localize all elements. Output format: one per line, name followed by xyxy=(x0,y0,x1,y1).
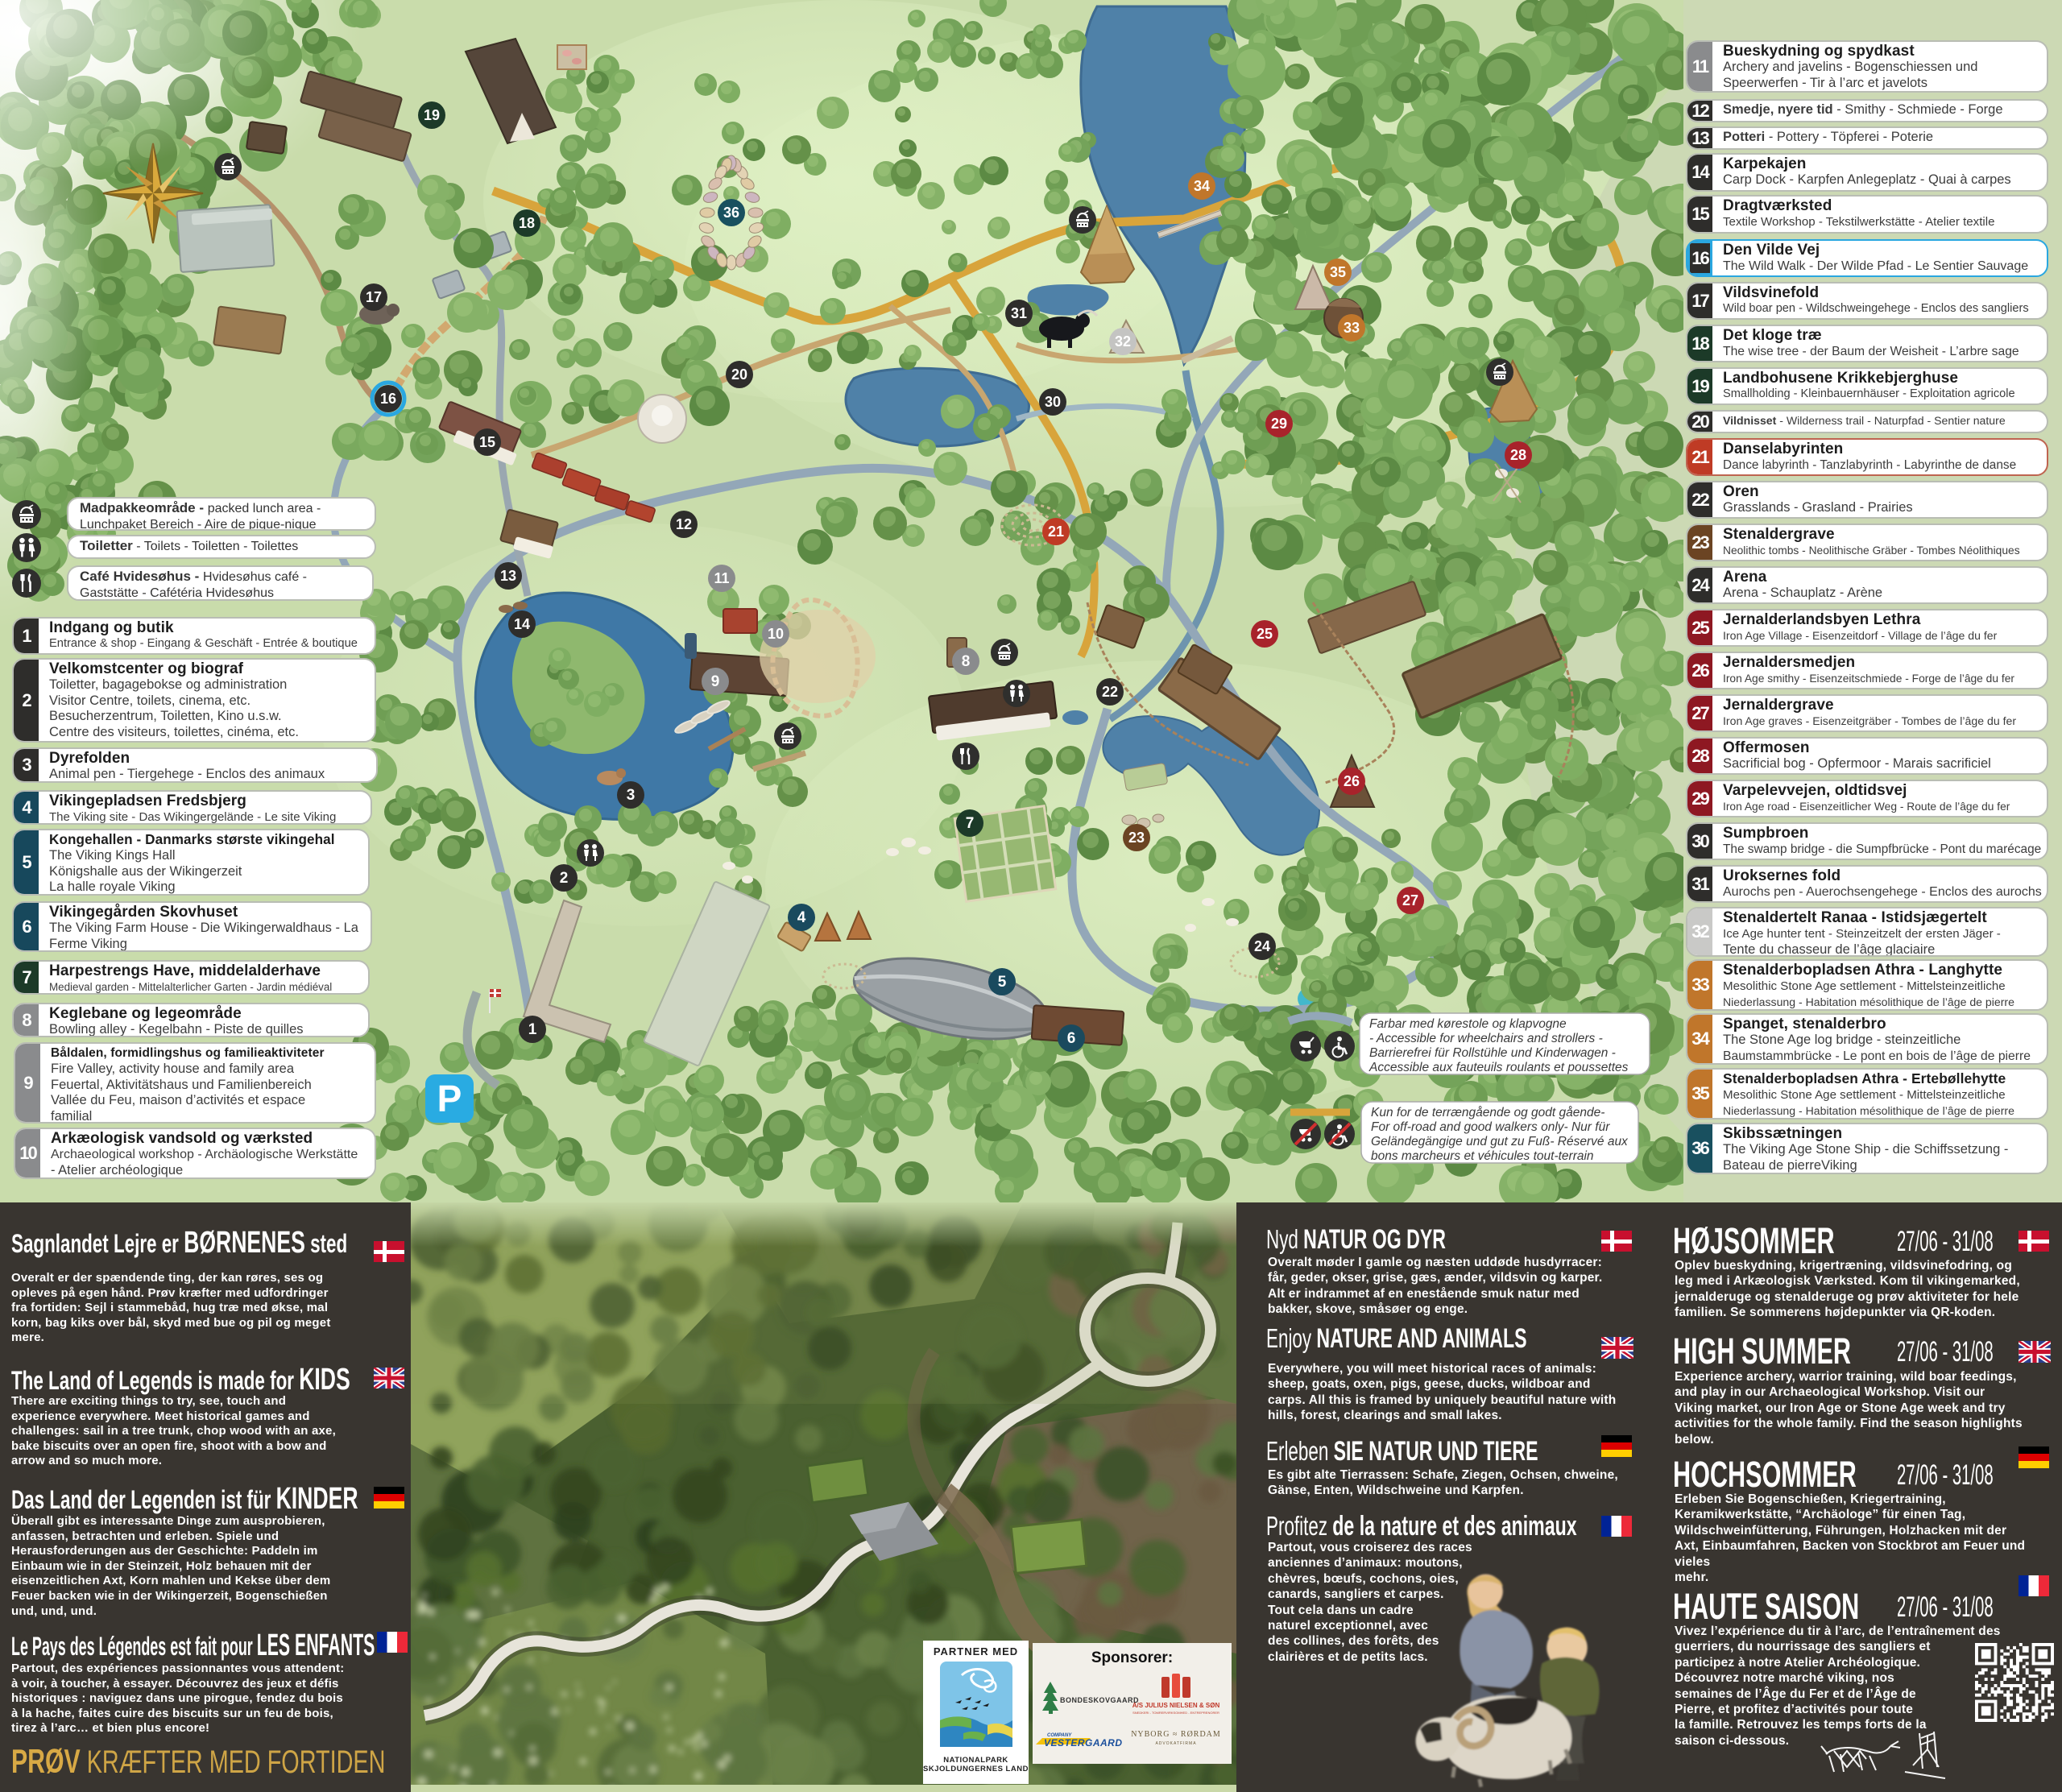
svg-text:For off-road and good walkers: For off-road and good walkers only- Nur … xyxy=(1371,1120,1610,1134)
svg-text:ADVOKATFIRMA: ADVOKATFIRMA xyxy=(1155,1741,1196,1746)
svg-text:Accessible aux fauteuils roula: Accessible aux fauteuils roulants et pou… xyxy=(1368,1061,1629,1074)
svg-text:NYBORG ≈ RØRDAM: NYBORG ≈ RØRDAM xyxy=(1131,1730,1221,1739)
svg-text:5: 5 xyxy=(998,974,1007,991)
svg-text:SNEDKERI - TOMRERVIRKSOMHED -: SNEDKERI - TOMRERVIRKSOMHED - ENTREPRENO… xyxy=(1132,1711,1219,1715)
svg-text:11: 11 xyxy=(714,570,729,586)
svg-text:bons marcheurs et véhicules to: bons marcheurs et véhicules tout-terrain xyxy=(1371,1149,1594,1163)
svg-text:9: 9 xyxy=(711,673,720,690)
svg-text:19: 19 xyxy=(424,107,440,123)
svg-text:BONDESKOVGAARD: BONDESKOVGAARD xyxy=(1060,1696,1139,1704)
svg-text:35: 35 xyxy=(1330,264,1346,280)
svg-text:24: 24 xyxy=(1254,938,1270,954)
svg-text:VESTERGAARD: VESTERGAARD xyxy=(1044,1737,1123,1749)
svg-text:Farbar med kørestole og klapvo: Farbar med kørestole og klapvogne xyxy=(1369,1017,1567,1031)
svg-text:8: 8 xyxy=(962,653,971,670)
svg-text:7: 7 xyxy=(966,815,975,832)
svg-text:10: 10 xyxy=(768,626,784,642)
svg-text:3: 3 xyxy=(627,787,636,804)
svg-text:P: P xyxy=(437,1078,462,1119)
svg-text:34: 34 xyxy=(1194,178,1210,194)
svg-text:29: 29 xyxy=(1271,416,1287,432)
svg-text:23: 23 xyxy=(1128,830,1145,846)
svg-text:16: 16 xyxy=(380,391,396,407)
svg-text:Kun for de terrængående og god: Kun for de terrængående og godt gående- xyxy=(1371,1106,1604,1119)
svg-text:14: 14 xyxy=(514,616,530,632)
svg-text:28: 28 xyxy=(1510,447,1526,463)
svg-text:4: 4 xyxy=(797,909,806,926)
svg-text:6: 6 xyxy=(1067,1030,1076,1047)
svg-text:36: 36 xyxy=(723,205,739,221)
svg-text:Geländegängige und gut zu Fuß-: Geländegängige und gut zu Fuß- Réservé a… xyxy=(1371,1135,1629,1148)
svg-text:30: 30 xyxy=(1045,394,1061,410)
svg-text:26: 26 xyxy=(1344,773,1360,789)
svg-text:A/S JULIUS NIELSEN & SØN: A/S JULIUS NIELSEN & SØN xyxy=(1132,1702,1220,1709)
svg-text:15: 15 xyxy=(479,434,495,450)
svg-text:27: 27 xyxy=(1402,892,1418,908)
svg-text:13: 13 xyxy=(500,568,516,584)
svg-text:18: 18 xyxy=(519,215,535,231)
svg-text:31: 31 xyxy=(1011,305,1027,321)
svg-text:Barrierefrei für Rollstühle un: Barrierefrei für Rollstühle und Kinderwa… xyxy=(1369,1046,1616,1060)
svg-text:1: 1 xyxy=(528,1021,537,1038)
svg-text:- Accessible for wheelchairs a: - Accessible for wheelchairs and strolle… xyxy=(1369,1032,1603,1045)
svg-text:2: 2 xyxy=(560,870,569,887)
svg-text:25: 25 xyxy=(1257,626,1273,642)
svg-text:20: 20 xyxy=(731,366,747,383)
svg-text:33: 33 xyxy=(1344,320,1360,336)
svg-text:22: 22 xyxy=(1102,684,1118,700)
svg-text:12: 12 xyxy=(676,516,692,532)
svg-text:17: 17 xyxy=(366,289,382,305)
svg-text:21: 21 xyxy=(1048,524,1064,540)
svg-text:32: 32 xyxy=(1115,333,1131,350)
